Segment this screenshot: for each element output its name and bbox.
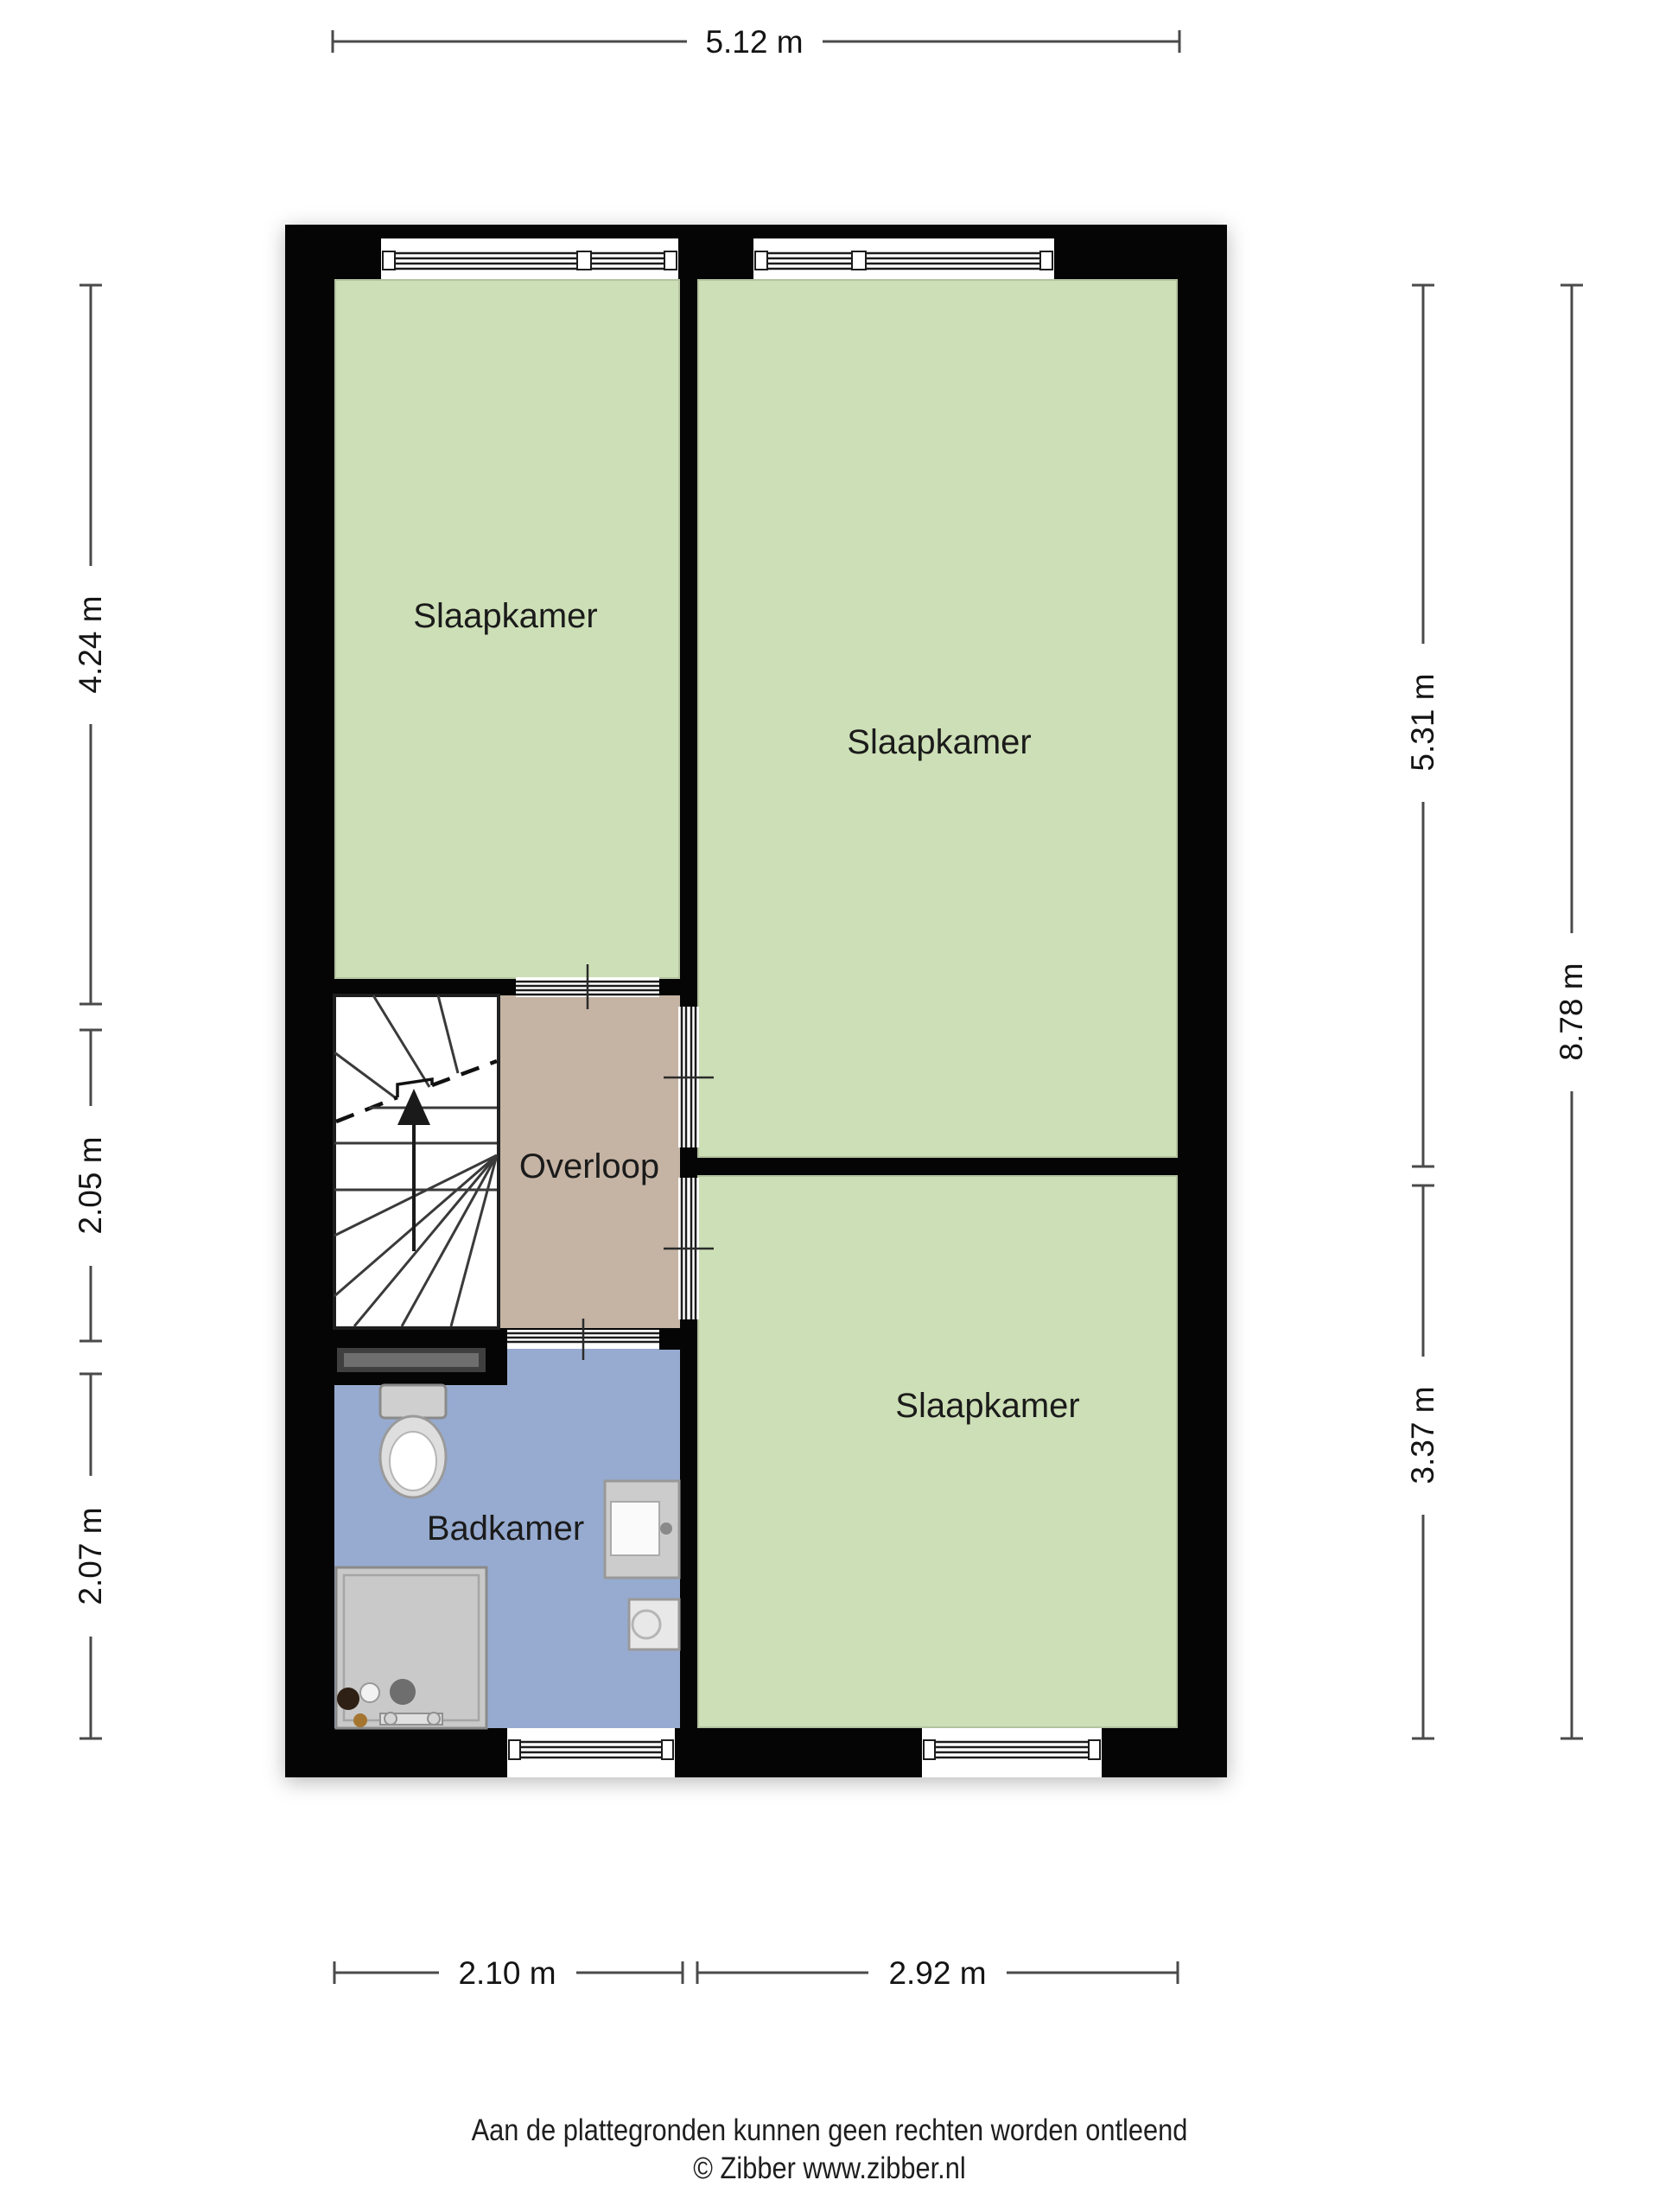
dim-bottom-left-label: 2.10 m bbox=[458, 1955, 556, 1991]
window-bottom-right bbox=[922, 1728, 1102, 1777]
window-bottom-left bbox=[507, 1728, 675, 1777]
room-bedroom-top-right bbox=[697, 279, 1178, 1158]
footer-disclaimer: Aan de plattegronden kunnen geen rechten… bbox=[99, 2112, 1560, 2150]
dim-right-outer-label: 8.78 m bbox=[1554, 963, 1589, 1060]
dim-top-label: 5.12 m bbox=[705, 24, 803, 60]
footer-copyright: © Zibber www.zibber.nl bbox=[99, 2150, 1560, 2188]
low-wall-bar-inner bbox=[344, 1353, 479, 1367]
label-bedroom-top-left: Slaapkamer bbox=[413, 597, 597, 635]
dim-right-inner: 5.31 m 3.37 m bbox=[1405, 285, 1440, 1738]
dim-top: 5.12 m bbox=[333, 24, 1179, 60]
room-bedroom-bottom-right bbox=[697, 1175, 1178, 1728]
dim-left-top-label: 4.24 m bbox=[73, 595, 108, 693]
dim-bottom-right-label: 2.92 m bbox=[888, 1955, 986, 1991]
wall-landing-bathroom-stub bbox=[659, 1328, 697, 1350]
wall-right-bedrooms bbox=[697, 1158, 1178, 1175]
window-top-left bbox=[381, 238, 678, 279]
floorplan-canvas: Slaapkamer Slaapkamer Slaapkamer Overloo… bbox=[0, 0, 1659, 2212]
sink bbox=[605, 1481, 679, 1578]
dim-bottom: 2.10 m 2.92 m bbox=[334, 1955, 1178, 1991]
dim-left-middle-label: 2.05 m bbox=[73, 1136, 108, 1234]
dim-left-bottom-label: 2.07 m bbox=[73, 1507, 108, 1605]
shower bbox=[336, 1567, 486, 1728]
stairs bbox=[334, 995, 499, 1328]
dim-right-top-label: 5.31 m bbox=[1405, 673, 1440, 771]
wall-vertical-divider bbox=[680, 225, 697, 1728]
dim-right-bottom-label: 3.37 m bbox=[1405, 1386, 1440, 1484]
label-bathroom: Badkamer bbox=[427, 1510, 584, 1548]
washing-machine bbox=[629, 1599, 679, 1649]
label-landing: Overloop bbox=[519, 1147, 659, 1185]
toilet bbox=[380, 1385, 446, 1497]
dim-right-outer: 8.78 m bbox=[1554, 285, 1589, 1738]
label-bedroom-top-right: Slaapkamer bbox=[847, 723, 1031, 761]
label-bedroom-bottom-right: Slaapkamer bbox=[895, 1387, 1079, 1425]
dim-left: 4.24 m 2.05 m 2.07 m bbox=[73, 285, 108, 1738]
footer: Aan de plattegronden kunnen geen rechten… bbox=[99, 2112, 1560, 2188]
window-top-right bbox=[753, 238, 1054, 279]
